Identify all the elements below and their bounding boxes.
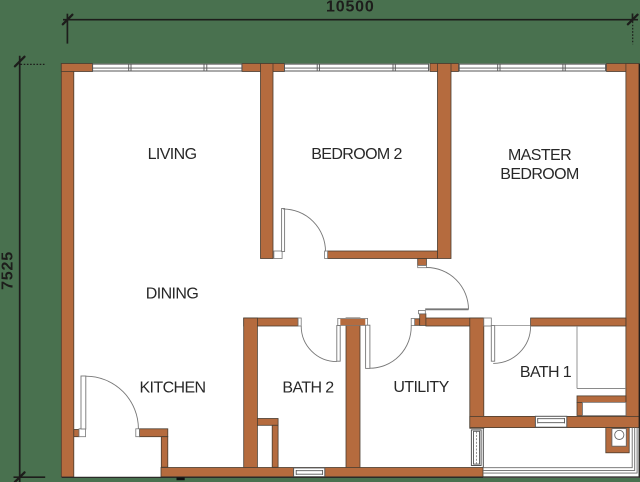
svg-text:LIVING: LIVING bbox=[148, 146, 197, 163]
svg-text:BEDROOM 2: BEDROOM 2 bbox=[311, 146, 402, 163]
svg-text:BATH 1: BATH 1 bbox=[520, 364, 572, 381]
svg-text:DINING: DINING bbox=[146, 285, 199, 302]
svg-text:BATH 2: BATH 2 bbox=[282, 380, 334, 397]
svg-text:UTILITY: UTILITY bbox=[393, 379, 449, 396]
svg-text:BEDROOM: BEDROOM bbox=[500, 166, 579, 183]
svg-text:10500: 10500 bbox=[326, 0, 375, 16]
svg-text:MASTER: MASTER bbox=[508, 147, 571, 164]
svg-text:7525: 7525 bbox=[0, 251, 16, 290]
svg-text:KITCHEN: KITCHEN bbox=[139, 380, 205, 397]
